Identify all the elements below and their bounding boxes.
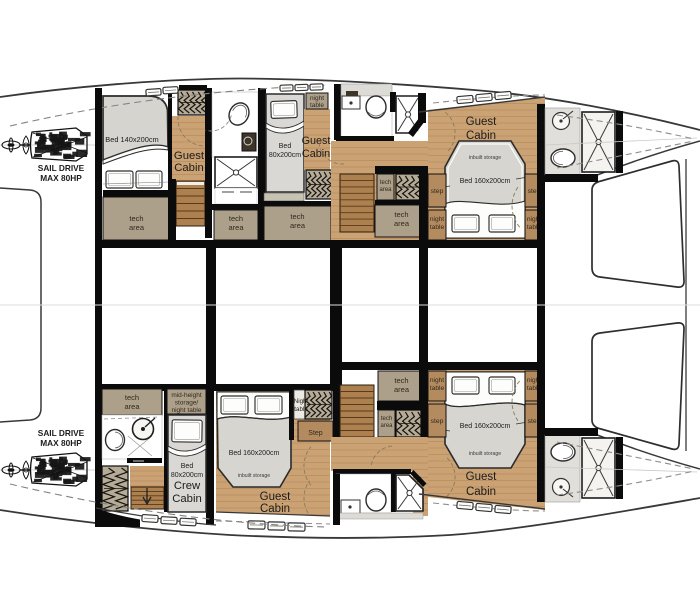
svg-text:area: area: [228, 223, 244, 232]
svg-text:Guest: Guest: [302, 135, 331, 147]
svg-text:inbuilt storage: inbuilt storage: [469, 451, 501, 457]
svg-text:tech: tech: [381, 416, 392, 422]
svg-text:Bed 140x200cm: Bed 140x200cm: [105, 135, 158, 144]
svg-text:Bed 160x200cm: Bed 160x200cm: [229, 450, 280, 457]
svg-text:step: step: [431, 188, 444, 195]
svg-text:Guest: Guest: [174, 150, 205, 162]
svg-text:area: area: [394, 385, 410, 394]
svg-text:table: table: [430, 385, 445, 392]
svg-text:Step: Step: [308, 430, 323, 437]
svg-text:storage/: storage/: [175, 400, 199, 407]
svg-text:area: area: [129, 223, 145, 232]
svg-text:80x200cm: 80x200cm: [171, 472, 203, 479]
svg-text:tech: tech: [229, 214, 243, 223]
svg-text:area: area: [394, 219, 410, 228]
svg-text:inbuilt storage: inbuilt storage: [238, 473, 270, 479]
svg-text:SAIL DRIVE: SAIL DRIVE: [38, 163, 85, 173]
svg-text:Crew: Crew: [174, 480, 201, 492]
svg-text:night: night: [430, 377, 444, 384]
svg-text:Guest: Guest: [466, 471, 497, 483]
svg-text:night: night: [430, 216, 444, 223]
svg-text:Cabin: Cabin: [466, 486, 496, 498]
svg-text:area: area: [290, 221, 306, 230]
svg-text:Guest: Guest: [260, 491, 291, 503]
svg-text:Bed 160x200cm: Bed 160x200cm: [460, 178, 511, 185]
svg-text:tech: tech: [129, 214, 143, 223]
svg-text:tech: tech: [125, 393, 139, 402]
svg-text:tech: tech: [394, 376, 408, 385]
svg-text:table: table: [430, 224, 445, 231]
svg-text:table: table: [310, 102, 324, 109]
svg-text:Cabin: Cabin: [302, 148, 330, 160]
svg-text:Guest: Guest: [466, 116, 497, 128]
svg-text:Bed: Bed: [181, 463, 194, 470]
svg-text:inbuilt storage: inbuilt storage: [469, 155, 501, 161]
svg-text:table: table: [294, 406, 308, 413]
svg-text:80x200cm: 80x200cm: [269, 152, 301, 159]
svg-text:Bed 160x200cm: Bed 160x200cm: [460, 423, 511, 430]
svg-text:step: step: [431, 418, 444, 425]
svg-text:Cabin: Cabin: [172, 493, 202, 505]
svg-text:MAX 80HP: MAX 80HP: [40, 438, 82, 448]
svg-text:tech: tech: [290, 212, 304, 221]
svg-text:area: area: [380, 423, 393, 429]
svg-text:SAIL DRIVE: SAIL DRIVE: [38, 428, 85, 438]
svg-text:night table: night table: [172, 407, 202, 414]
svg-text:Bed: Bed: [279, 143, 292, 150]
svg-text:area: area: [379, 187, 392, 193]
svg-text:Cabin: Cabin: [174, 162, 204, 174]
svg-text:tech: tech: [394, 210, 408, 219]
svg-text:night: night: [310, 95, 324, 102]
svg-text:Night: Night: [294, 398, 309, 405]
svg-text:tech: tech: [380, 180, 391, 186]
svg-text:area: area: [124, 402, 140, 411]
svg-text:mid-height: mid-height: [171, 392, 202, 399]
svg-text:MAX 80HP: MAX 80HP: [40, 173, 82, 183]
